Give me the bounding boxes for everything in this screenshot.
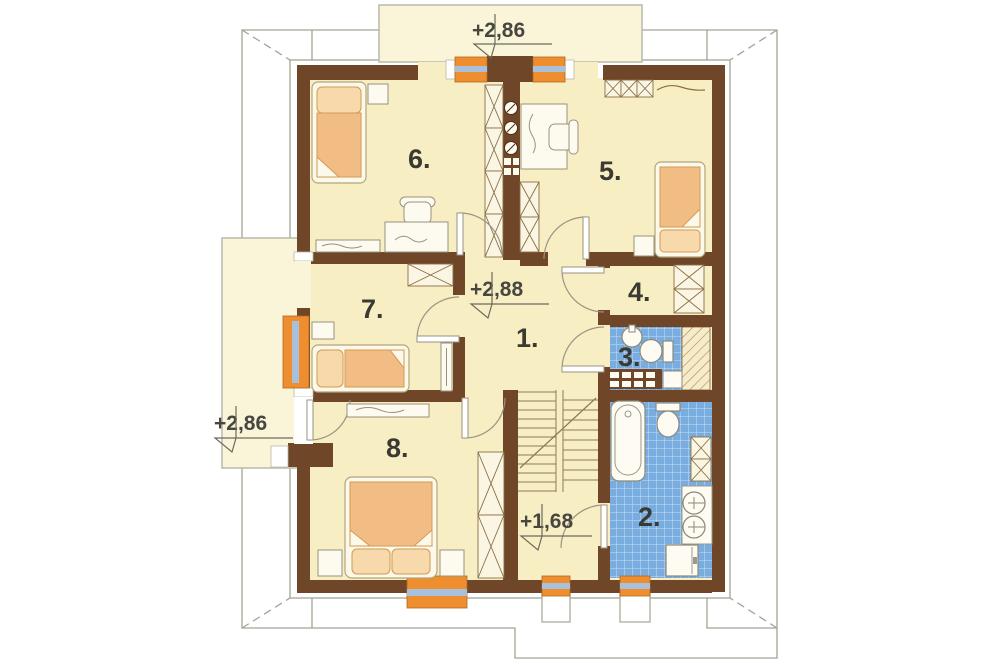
bathtub: [611, 401, 645, 481]
duct-shaft: [682, 327, 710, 390]
window-top-right: [533, 57, 565, 82]
wardrobe-room7: [408, 264, 453, 286]
radiator-room7: [441, 343, 452, 391]
level-text-top: +2,86: [472, 19, 525, 42]
level-text-hall: +2,88: [470, 278, 523, 301]
window-top-left: [455, 57, 487, 82]
wardrobe-room5-side: [520, 182, 539, 252]
nightstand-room7: [312, 322, 334, 339]
nightstand-room8-right: [440, 550, 464, 576]
shelf-room6: [316, 240, 380, 252]
washbasin-2: [683, 516, 705, 538]
shelf-bathroom: [691, 437, 711, 481]
bed-room7: [312, 345, 409, 392]
window-bottom-hall: [542, 576, 570, 596]
toilet-bathroom2: [656, 403, 680, 437]
room-label-7: 7.: [361, 294, 384, 324]
window-west: [283, 316, 309, 388]
nightstand-room6: [368, 84, 388, 104]
window-bays-bottom: [542, 593, 650, 622]
room-label-2: 2.: [638, 502, 661, 532]
room-label-5: 5.: [599, 156, 622, 186]
room-label-8: 8.: [386, 433, 409, 463]
shelf-room8: [347, 404, 429, 417]
room-label-4: 4.: [628, 277, 651, 307]
floor-plan-drawing: 6. 5. 7. 1. 4. 3. 8. 2. +2,86 +2,86 +2,8…: [0, 0, 1000, 666]
washing-machine: [666, 545, 698, 576]
room-label-3: 3.: [618, 342, 641, 372]
washbasin-1: [683, 492, 705, 514]
wardrobe-room8: [478, 452, 504, 578]
toilet-wc3: [640, 340, 673, 363]
window-jamb: [565, 60, 574, 79]
floor-plan-canvas: 6. 5. 7. 1. 4. 3. 8. 2. +2,86 +2,86 +2,8…: [0, 0, 1000, 666]
window-jamb: [446, 60, 455, 79]
level-text-left: +2,86: [214, 412, 267, 435]
bed-room5: [655, 162, 705, 257]
nightstand-room8-left: [318, 550, 342, 576]
room-label-1: 1.: [516, 323, 539, 353]
window-bottom-room8: [407, 576, 467, 608]
room-label-6: 6.: [408, 144, 431, 174]
bed-room6: [312, 82, 366, 183]
level-text-landing: +1,68: [520, 510, 573, 533]
radiator-wc3: [607, 369, 662, 389]
bed-room8-double: [345, 477, 437, 578]
shelf-room5-top: [605, 80, 653, 97]
nightstand-room5: [634, 236, 654, 256]
window-bottom-bath: [620, 576, 650, 596]
wardrobe-room4: [674, 265, 704, 313]
